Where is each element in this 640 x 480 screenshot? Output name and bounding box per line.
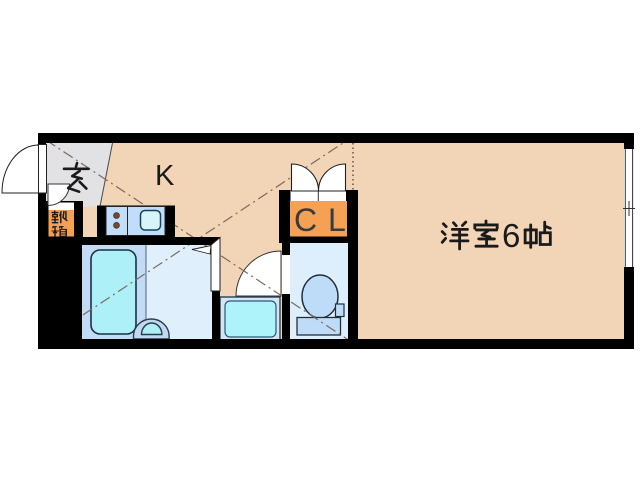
svg-text:6: 6 bbox=[502, 217, 520, 254]
svg-text:C L: C L bbox=[294, 202, 347, 238]
svg-text:K: K bbox=[155, 160, 175, 192]
